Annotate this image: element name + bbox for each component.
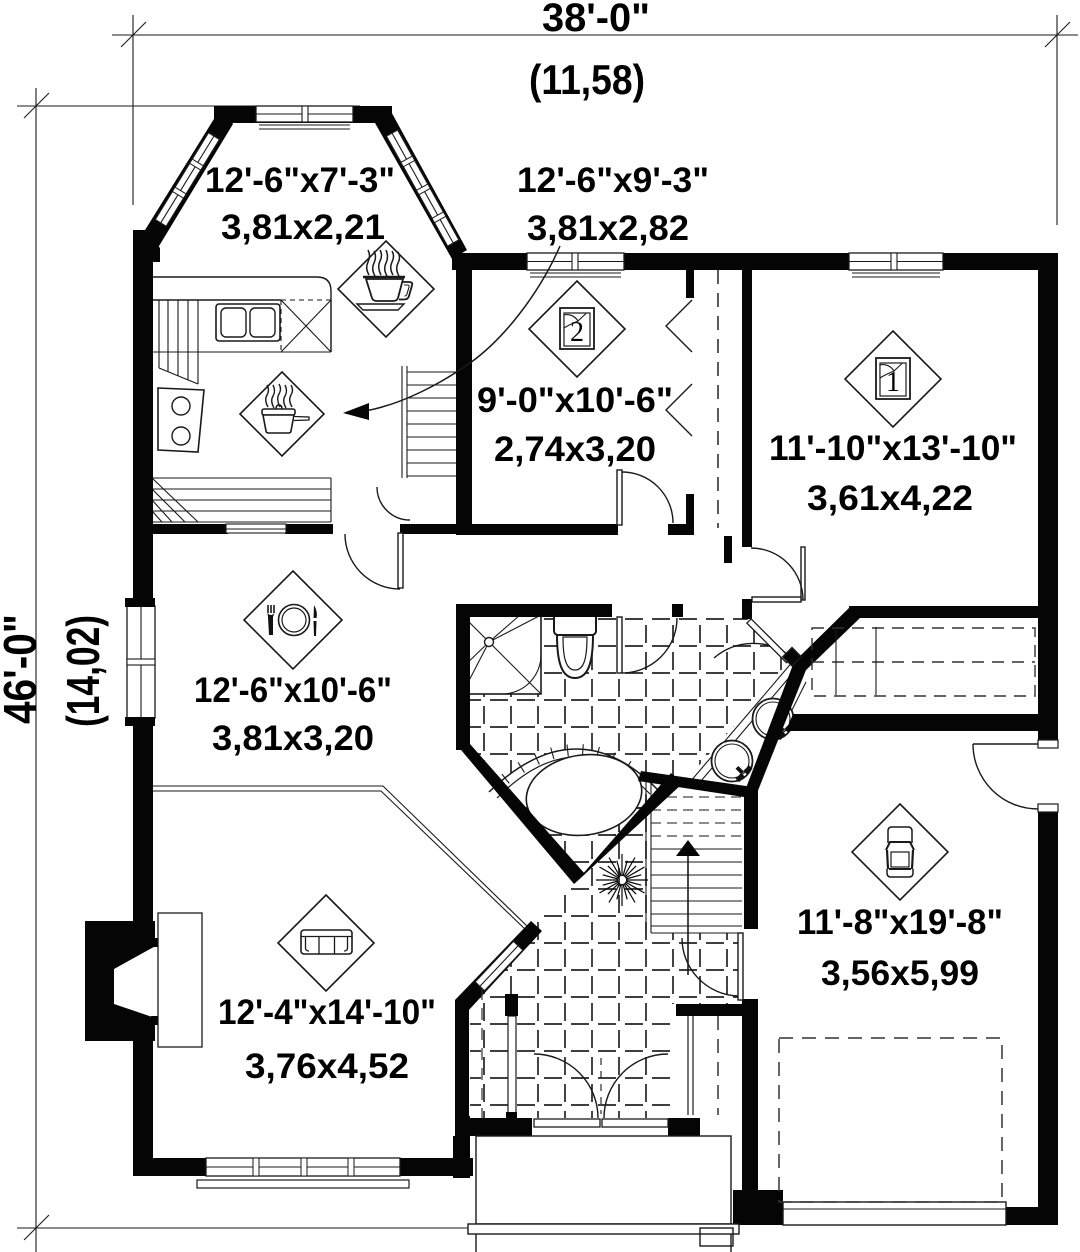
svg-text:3,81x3,20: 3,81x3,20 — [212, 719, 374, 758]
svg-text:(14,02): (14,02) — [57, 615, 109, 727]
svg-text:12'-6"x7'-3": 12'-6"x7'-3" — [205, 161, 395, 200]
svg-text:11'-10"x13'-10": 11'-10"x13'-10" — [769, 429, 1017, 468]
svg-text:11'-8"x19'-8": 11'-8"x19'-8" — [797, 903, 1003, 942]
svg-text:12'-4"x14'-10": 12'-4"x14'-10" — [218, 993, 436, 1032]
svg-text:12'-6"x9'-3": 12'-6"x9'-3" — [517, 161, 709, 200]
svg-text:2: 2 — [570, 317, 584, 348]
svg-text:(11,58): (11,58) — [529, 56, 645, 103]
svg-text:3,56x5,99: 3,56x5,99 — [821, 954, 979, 993]
svg-text:3,76x4,52: 3,76x4,52 — [245, 1047, 409, 1086]
svg-text:2,74x3,20: 2,74x3,20 — [494, 430, 656, 469]
svg-text:9'-0"x10'-6": 9'-0"x10'-6" — [477, 381, 673, 420]
svg-text:38'-0": 38'-0" — [542, 0, 650, 40]
svg-text:3,61x4,22: 3,61x4,22 — [807, 479, 973, 518]
svg-text:46'-0": 46'-0" — [0, 614, 46, 724]
svg-text:12'-6"x10'-6": 12'-6"x10'-6" — [194, 671, 392, 710]
svg-text:3,81x2,21: 3,81x2,21 — [221, 208, 385, 247]
svg-text:3,81x2,82: 3,81x2,82 — [527, 209, 689, 248]
svg-text:1: 1 — [886, 367, 900, 398]
